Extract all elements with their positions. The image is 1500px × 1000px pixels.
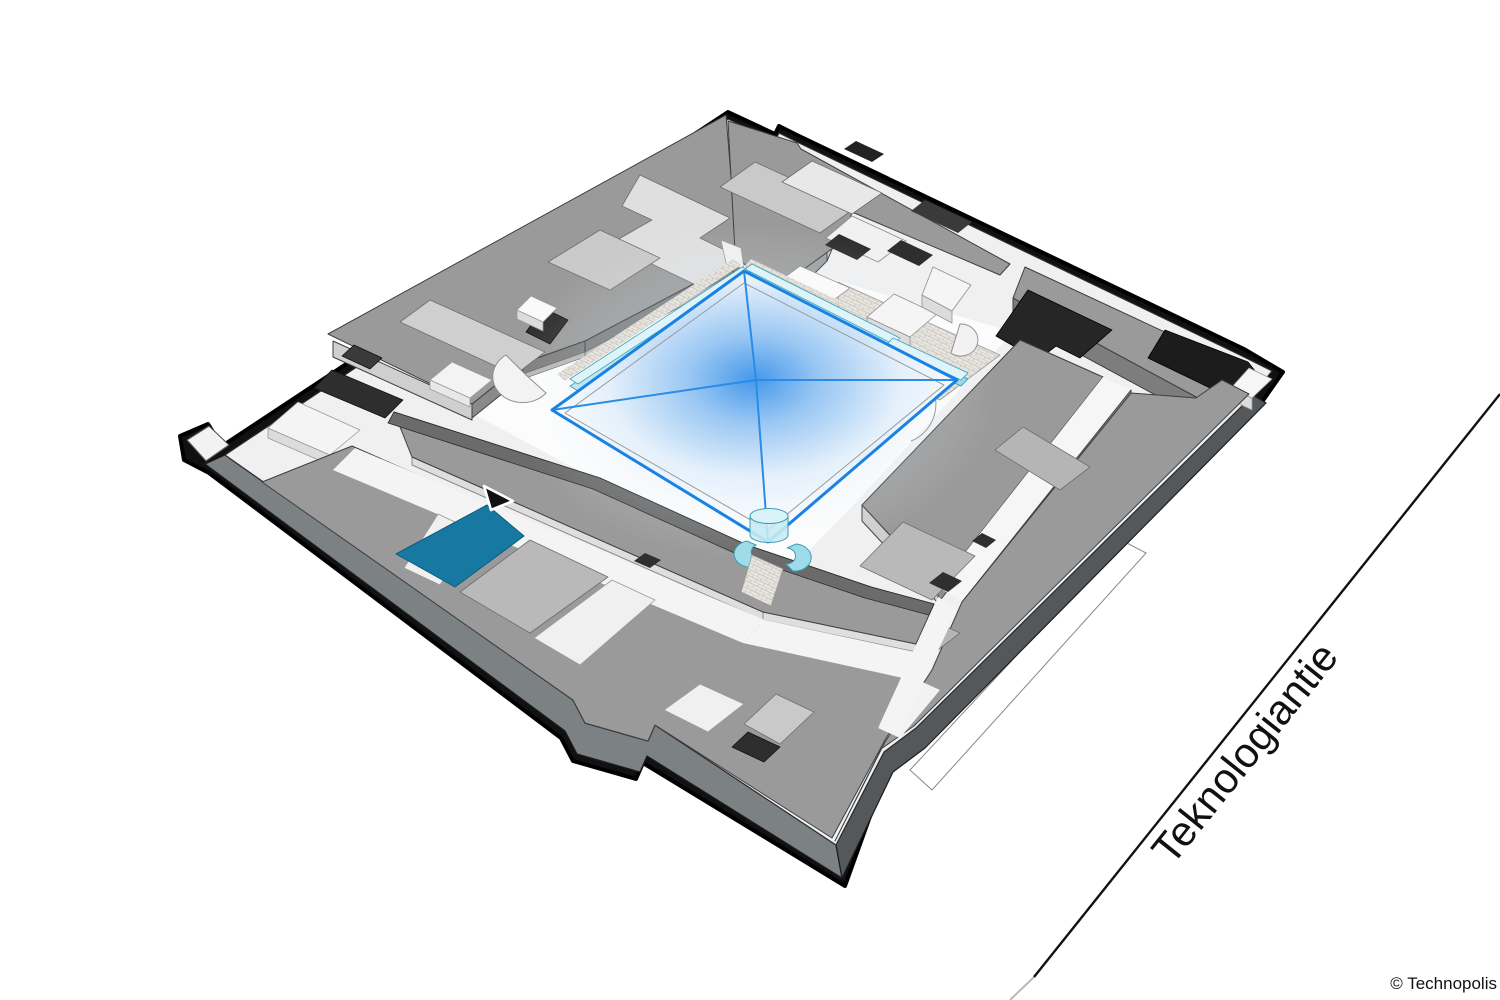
svg-text:© Technopolis: © Technopolis [1390,974,1497,993]
